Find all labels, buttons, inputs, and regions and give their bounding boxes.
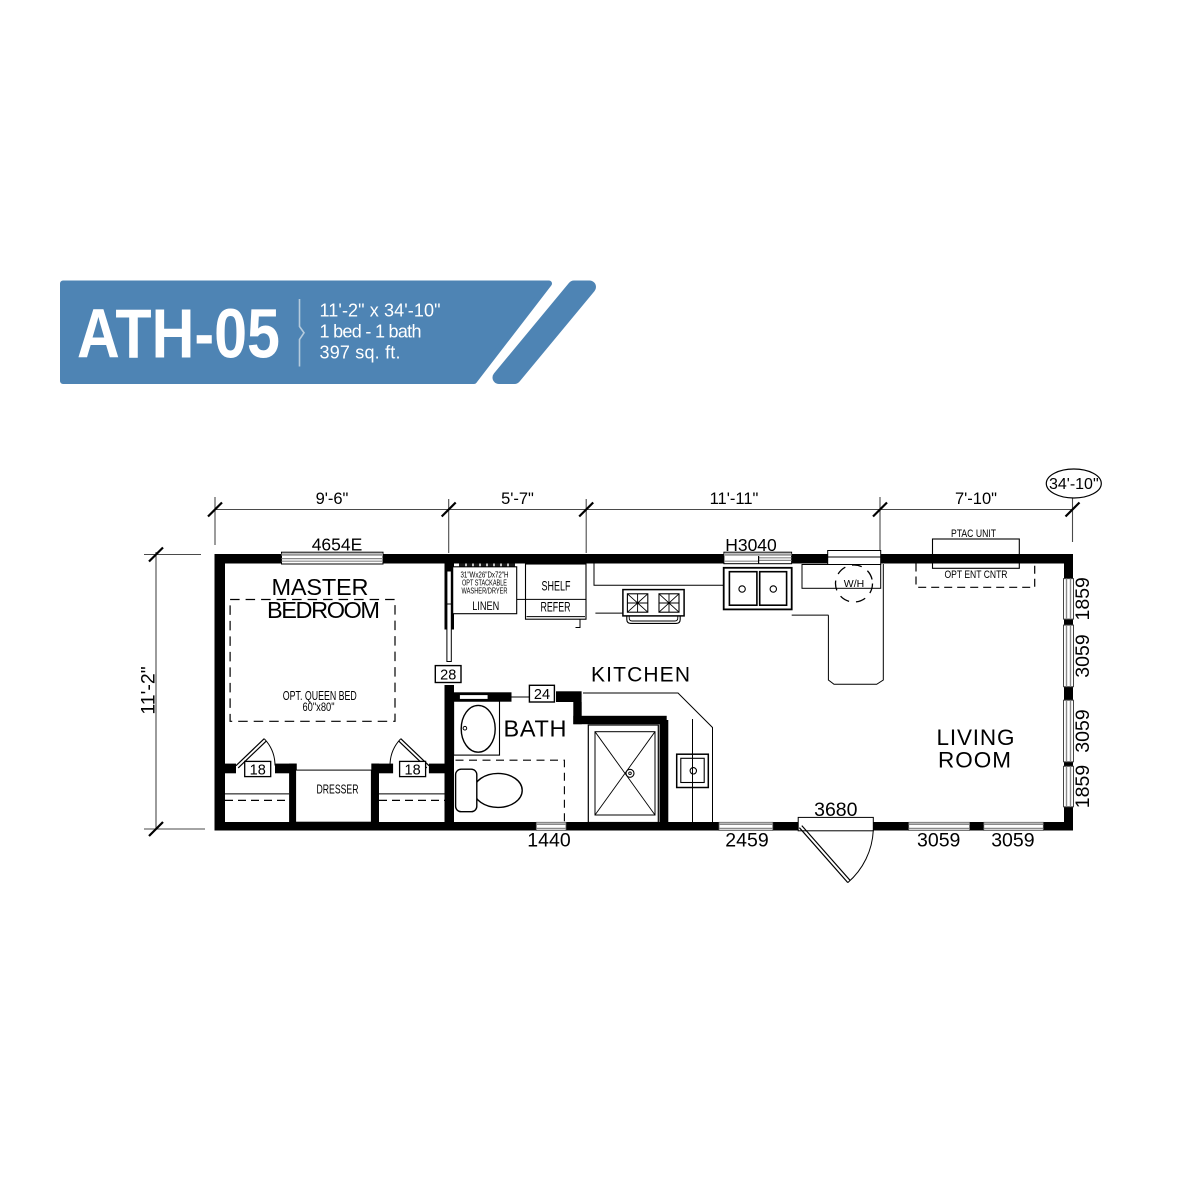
- svg-text:MASTER: MASTER: [272, 574, 369, 600]
- svg-text:11'-11": 11'-11": [710, 490, 759, 508]
- svg-text:24: 24: [534, 687, 550, 703]
- svg-text:KITCHEN: KITCHEN: [591, 664, 690, 687]
- svg-text:OPT. QUEEN BED: OPT. QUEEN BED: [283, 688, 357, 703]
- svg-text:1440: 1440: [527, 830, 571, 852]
- svg-text:ROOM: ROOM: [938, 748, 1011, 773]
- svg-text:LINEN: LINEN: [472, 599, 499, 613]
- svg-text:5'-7": 5'-7": [501, 490, 534, 508]
- svg-text:9'-6": 9'-6": [316, 490, 349, 508]
- svg-text:2459: 2459: [725, 830, 768, 852]
- svg-text:LIVING: LIVING: [937, 725, 1015, 750]
- svg-text:3059: 3059: [1072, 709, 1094, 752]
- svg-text:28: 28: [440, 667, 456, 683]
- svg-text:3059: 3059: [991, 830, 1034, 852]
- svg-text:3059: 3059: [1072, 634, 1094, 677]
- svg-text:ATH-05: ATH-05: [77, 295, 280, 373]
- svg-text:3680: 3680: [814, 799, 858, 821]
- svg-text:BEDROOM: BEDROOM: [267, 597, 380, 623]
- svg-text:1859: 1859: [1072, 577, 1094, 620]
- svg-text:SHELF: SHELF: [542, 579, 571, 594]
- svg-text:OPT ENT CNTR: OPT ENT CNTR: [945, 569, 1008, 581]
- svg-text:WASHER/DRYER: WASHER/DRYER: [462, 586, 508, 596]
- svg-text:11'-2" x 34'-10": 11'-2" x 34'-10": [320, 301, 441, 321]
- svg-text:W/H: W/H: [844, 578, 864, 590]
- svg-text:PTAC UNIT: PTAC UNIT: [951, 528, 996, 540]
- svg-text:397 sq. ft.: 397 sq. ft.: [320, 343, 401, 363]
- svg-text:DRESSER: DRESSER: [317, 783, 359, 797]
- svg-text:1 bed - 1 bath: 1 bed - 1 bath: [320, 322, 422, 342]
- svg-text:4654E: 4654E: [312, 535, 363, 555]
- svg-text:REFER: REFER: [541, 600, 571, 615]
- svg-text:7'-10": 7'-10": [955, 490, 997, 508]
- svg-text:18: 18: [405, 762, 421, 778]
- svg-text:11'-2": 11'-2": [138, 666, 160, 714]
- svg-text:H3040: H3040: [725, 535, 777, 555]
- svg-text:34'-10": 34'-10": [1049, 476, 1099, 493]
- svg-text:1859: 1859: [1072, 765, 1094, 808]
- svg-text:18: 18: [250, 762, 266, 778]
- svg-text:3059: 3059: [917, 830, 960, 852]
- svg-text:BATH: BATH: [504, 716, 567, 742]
- svg-text:60"x80": 60"x80": [303, 702, 335, 714]
